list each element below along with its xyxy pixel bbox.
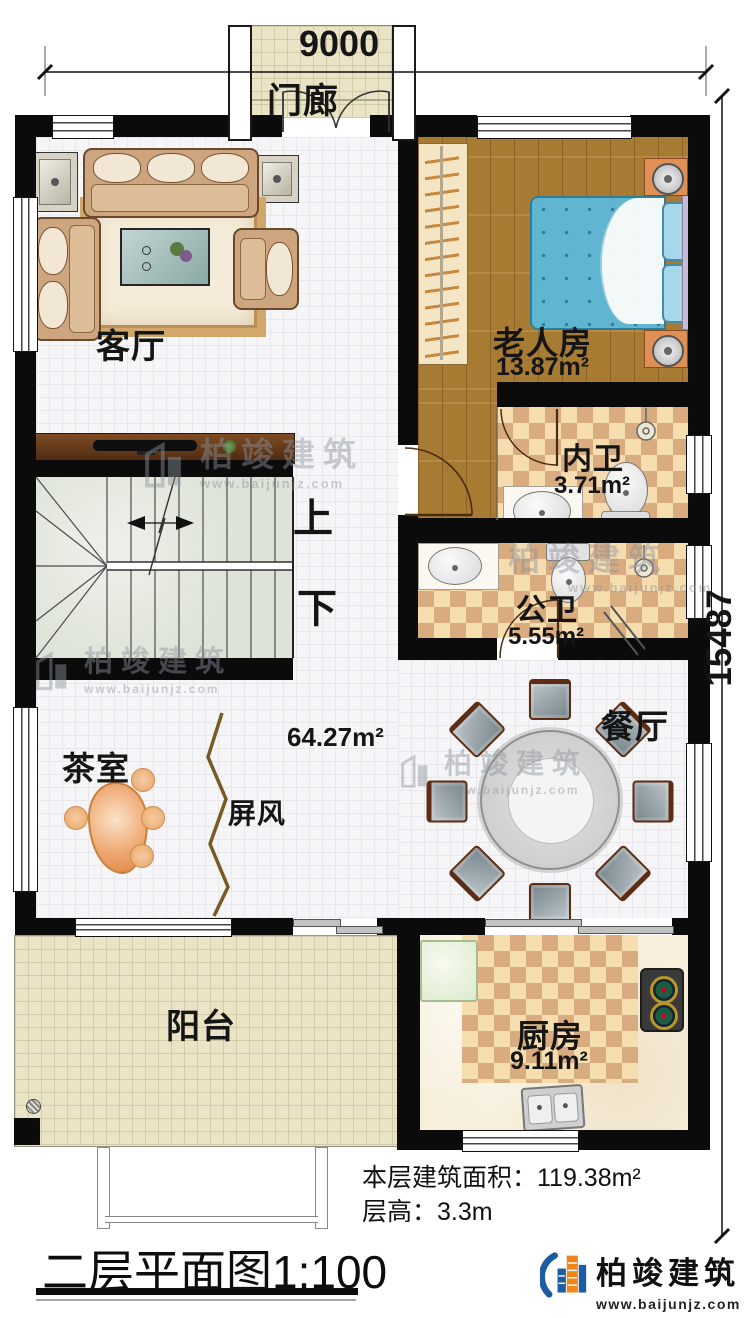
sofa-three-seat xyxy=(83,148,259,218)
balcony-post xyxy=(14,1118,40,1145)
room-label-porch: 门廊 xyxy=(267,84,339,119)
exterior-wall xyxy=(15,890,36,935)
screen-label: 屏风 xyxy=(228,800,286,828)
exterior-wall xyxy=(36,918,75,935)
exterior-wall xyxy=(15,115,36,197)
dining-chair xyxy=(633,781,674,823)
window xyxy=(52,115,114,139)
coffee-table xyxy=(120,228,210,286)
room-label-dining: 餐厅 xyxy=(601,710,669,743)
bedroom-corridor-floor xyxy=(418,390,497,520)
room-area-bedroom: 13.87m² xyxy=(496,355,589,380)
brand-website: www.baijunjz.com xyxy=(596,1296,741,1312)
exterior-wall xyxy=(377,918,485,935)
wardrobe xyxy=(418,143,468,365)
kitchen-wall xyxy=(397,1130,462,1150)
floor-height-text: 层高：3.3m xyxy=(362,1192,493,1228)
stairs-down-label: 下 xyxy=(297,589,338,629)
window xyxy=(75,918,232,937)
railing-bar xyxy=(105,1216,318,1223)
exterior-wall xyxy=(15,350,36,707)
window xyxy=(477,116,632,139)
interior-wall xyxy=(398,137,418,445)
dining-chair xyxy=(529,883,571,924)
interior-wall xyxy=(398,638,497,660)
room-label-public-bath: 公卫 xyxy=(516,596,578,626)
title-underline-thick xyxy=(36,1288,358,1295)
nightstand-bottom xyxy=(644,330,688,368)
brand-logo: 柏竣建筑 www.baijunjz.com xyxy=(540,1248,741,1312)
nightstand-top xyxy=(644,158,688,196)
kitchen-wall xyxy=(397,935,420,1150)
window xyxy=(13,707,38,892)
porch-wall-stub xyxy=(370,115,392,137)
exterior-wall xyxy=(410,115,477,137)
plant xyxy=(223,440,236,453)
bed xyxy=(530,194,688,328)
porch-column xyxy=(228,25,252,141)
stove xyxy=(640,968,684,1032)
floor-drain xyxy=(26,1099,41,1114)
sliding-door-kitchen xyxy=(578,926,674,934)
tea-stool xyxy=(130,844,154,868)
tea-stool xyxy=(141,806,165,830)
stairs-wall xyxy=(36,658,293,680)
stairs-floor xyxy=(36,477,293,658)
brand-logo-icon xyxy=(540,1248,588,1302)
side-table-lamp-left xyxy=(32,152,78,212)
exterior-wall xyxy=(688,490,710,545)
dining-chair xyxy=(427,781,468,823)
dining-chair xyxy=(529,679,571,720)
dim-right-label: 15487 xyxy=(702,578,742,698)
sliding-door-balcony xyxy=(336,926,383,934)
exterior-wall xyxy=(688,115,710,435)
window xyxy=(686,743,712,862)
interior-wall xyxy=(398,518,688,543)
exterior-wall xyxy=(688,860,710,1150)
exterior-wall xyxy=(112,115,230,137)
stairs-up-label: 上 xyxy=(293,499,334,539)
sliding-door-kitchen xyxy=(485,919,582,927)
dining-table xyxy=(480,730,620,870)
kitchen-wall xyxy=(577,1130,688,1150)
window xyxy=(13,197,38,352)
side-table-lamp-right xyxy=(255,155,299,203)
title-underline-thin xyxy=(36,1299,356,1301)
sink-public-bath xyxy=(428,547,482,585)
room-label-tea: 茶室 xyxy=(62,752,130,785)
hall-area-label: 64.27m² xyxy=(287,724,384,750)
dim-top-label: 9000 xyxy=(299,26,379,62)
tea-stool xyxy=(64,806,88,830)
sliding-door-balcony xyxy=(293,919,341,927)
room-area-public-bath: 5.55m² xyxy=(508,625,584,649)
tea-stool xyxy=(131,768,155,792)
sofa-two-seat xyxy=(33,217,101,341)
room-label-balcony: 阳台 xyxy=(166,1010,236,1044)
stairs-wall xyxy=(36,460,293,477)
room-label-living: 客厅 xyxy=(96,330,166,364)
window xyxy=(462,1130,579,1152)
exterior-wall xyxy=(672,918,688,935)
interior-wall xyxy=(497,382,688,407)
exterior-wall xyxy=(230,918,293,935)
fridge xyxy=(420,940,478,1002)
armchair xyxy=(233,228,299,310)
brand-name: 柏竣建筑 xyxy=(596,1248,741,1293)
floor-area-text: 本层建筑面积：119.38m² xyxy=(362,1158,641,1194)
room-area-kitchen: 9.11m² xyxy=(510,1049,588,1074)
tv xyxy=(93,440,197,451)
kitchen-sink xyxy=(521,1084,586,1132)
porch-column xyxy=(392,25,416,141)
window xyxy=(686,435,712,494)
room-label-inner-bath: 内卫 xyxy=(562,445,624,475)
room-area-inner-bath: 3.71m² xyxy=(554,474,630,498)
floor-plan: 9000 15487 门廊 客厅 老人房 13.87m² 内卫 3.71m² 公… xyxy=(0,0,750,1318)
